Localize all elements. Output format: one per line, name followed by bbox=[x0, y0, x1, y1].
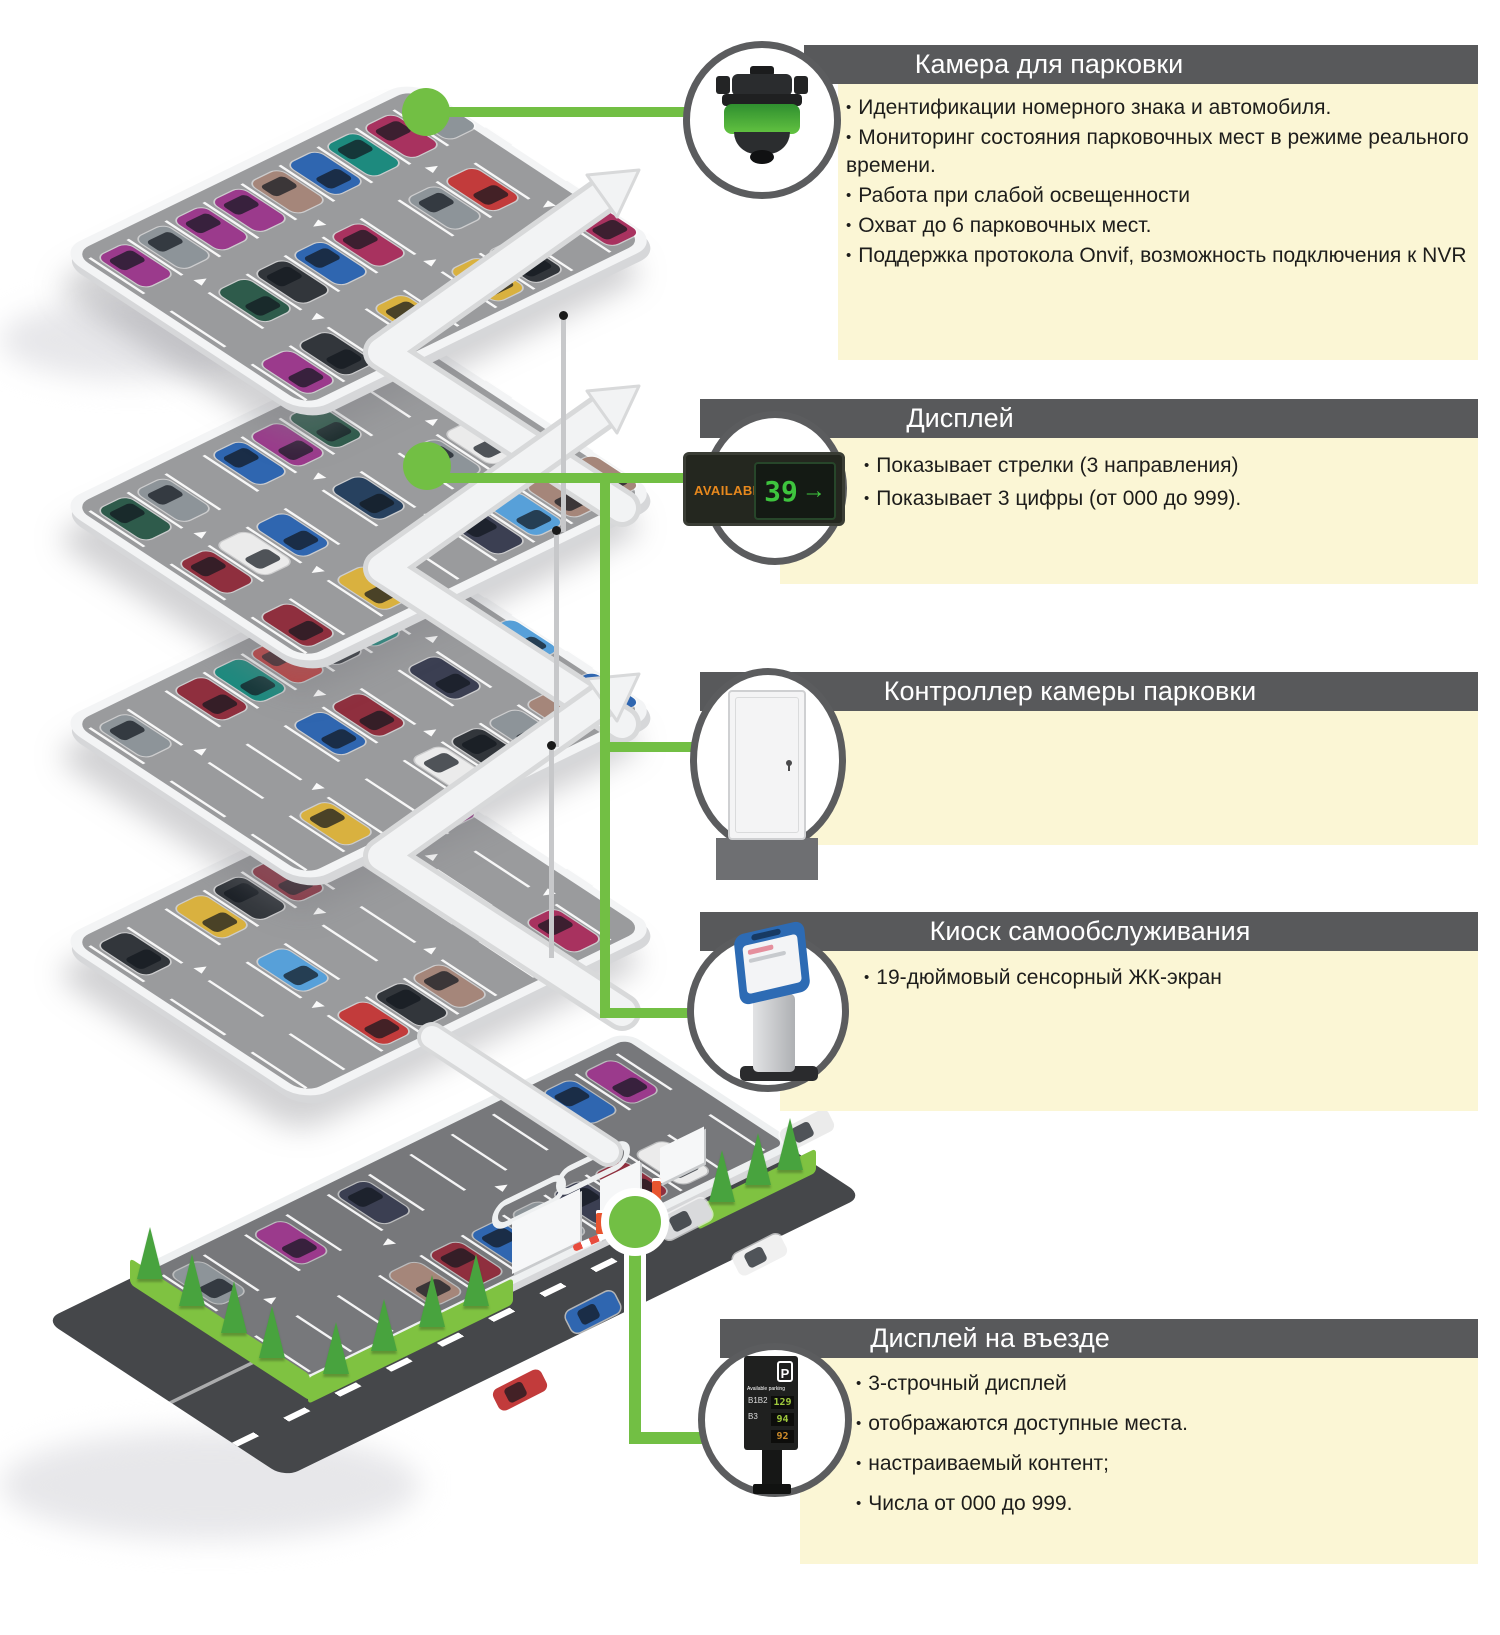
entrance-display-title: Дисплей на въезде bbox=[780, 1319, 1200, 1358]
kiosk-pedestal bbox=[753, 994, 795, 1072]
led-display-icon: AVAILABLE 39 → bbox=[683, 452, 845, 526]
parked-car bbox=[406, 655, 484, 701]
entrance-sign-pole bbox=[762, 1450, 782, 1486]
parked-car bbox=[335, 1180, 413, 1226]
parked-car bbox=[254, 947, 332, 993]
bullet-item: •Показывает 3 цифры (от 000 до 999). bbox=[864, 485, 1464, 513]
entrance-sign-zone: B3 bbox=[748, 1412, 758, 1421]
bullet-item: •Работа при слабой освещенности bbox=[846, 182, 1470, 210]
tree bbox=[419, 1275, 445, 1327]
parked-car bbox=[406, 873, 484, 919]
kiosk-title: Киоск самообслуживания bbox=[850, 912, 1330, 951]
controller-base bbox=[716, 838, 818, 880]
bullet-item: •Охват до 6 парковочных мест. bbox=[846, 212, 1470, 240]
tree bbox=[745, 1133, 771, 1185]
controller-panel bbox=[780, 711, 1478, 845]
bullet-item: •Поддержка протокола Onvif, возможность … bbox=[846, 242, 1470, 270]
entrance-sign-base bbox=[753, 1484, 791, 1494]
entrance-display-title-bar: Дисплей на въезде bbox=[720, 1319, 1478, 1358]
camera-title: Камера для парковки bbox=[824, 45, 1274, 84]
bullet-item: •19-дюймовый сенсорный ЖК-экран bbox=[864, 964, 1464, 992]
parked-car bbox=[97, 931, 175, 977]
camera-title-bar: Камера для парковки bbox=[804, 45, 1478, 84]
light-pole bbox=[561, 318, 566, 532]
connector-line-camera bbox=[426, 107, 690, 117]
parked-car bbox=[252, 1220, 330, 1266]
parked-car bbox=[97, 713, 175, 759]
display-location-dot bbox=[403, 442, 451, 490]
entrance-display-icon: P Available parking B1B2 B3 129 94 92 bbox=[744, 1356, 798, 1450]
light-pole bbox=[554, 533, 559, 747]
gate-post bbox=[596, 1210, 605, 1234]
gate-post bbox=[652, 1178, 661, 1202]
controller-cabinet-icon bbox=[728, 690, 806, 840]
parked-car bbox=[335, 565, 413, 611]
connector-line-controller bbox=[600, 742, 694, 752]
bullet-item: •Мониторинг состояния парковочных мест в… bbox=[846, 124, 1470, 180]
bullet-item: •Показывает стрелки (3 направления) bbox=[864, 452, 1464, 480]
tree bbox=[137, 1227, 163, 1279]
tree bbox=[259, 1306, 285, 1358]
parking-system-infographic: Камера для парковки •Идентификации номер… bbox=[0, 0, 1500, 1635]
shadow-blob bbox=[0, 1430, 420, 1540]
connector-line-entrance bbox=[629, 1432, 707, 1444]
parked-car bbox=[297, 801, 375, 847]
parked-car bbox=[482, 618, 560, 664]
tree bbox=[179, 1254, 205, 1306]
display-sign-value: 39 bbox=[764, 475, 798, 508]
road-car bbox=[490, 1367, 549, 1413]
connector-stem-gate bbox=[629, 1246, 641, 1442]
parking-p-logo: P bbox=[777, 1361, 793, 1382]
kiosk-bullets: •19-дюймовый сенсорный ЖК-экран bbox=[864, 964, 1464, 994]
kiosk-title-bar: Киоск самообслуживания bbox=[700, 912, 1478, 951]
entrance-sign-brand: Available parking bbox=[747, 1386, 795, 1392]
bullet-item: •Идентификации номерного знака и автомоб… bbox=[846, 94, 1470, 122]
bullet-item: •отображаются доступные места. bbox=[856, 1410, 1456, 1438]
gate-location-dot bbox=[609, 1196, 661, 1248]
parked-car bbox=[259, 602, 337, 648]
parked-car bbox=[563, 201, 641, 247]
entrance-display-bullets: •3-строчный дисплей•отображаются доступн… bbox=[856, 1370, 1456, 1530]
tree bbox=[221, 1281, 247, 1333]
entrance-sign-count: 129 bbox=[771, 1396, 794, 1409]
entrance-sign-count: 92 bbox=[771, 1430, 794, 1443]
light-pole bbox=[549, 748, 554, 958]
entrance-sign-count: 94 bbox=[771, 1413, 794, 1426]
tree bbox=[463, 1254, 489, 1306]
camera-location-dot bbox=[402, 88, 450, 136]
camera-bullets: •Идентификации номерного знака и автомоб… bbox=[846, 94, 1470, 272]
tree bbox=[777, 1118, 803, 1170]
parked-car bbox=[330, 475, 408, 521]
tree bbox=[709, 1150, 735, 1202]
bullet-item: •настраиваемый контент; bbox=[856, 1450, 1456, 1478]
parked-car bbox=[373, 294, 451, 340]
tree bbox=[323, 1322, 349, 1374]
controller-title: Контроллер камеры парковки bbox=[820, 672, 1320, 711]
connector-line-kiosk bbox=[600, 1008, 692, 1018]
parking-camera-icon bbox=[714, 66, 810, 170]
bullet-item: •3-строчный дисплей bbox=[856, 1370, 1456, 1398]
connector-line-display bbox=[427, 473, 697, 483]
tree bbox=[371, 1299, 397, 1351]
display-sign-panel: 39 → bbox=[754, 462, 836, 520]
display-sign-arrow: → bbox=[802, 477, 826, 505]
entrance-sign-zone: B1B2 bbox=[748, 1396, 768, 1405]
bullet-item: •Числа от 000 до 999. bbox=[856, 1490, 1456, 1518]
display-bullets: •Показывает стрелки (3 направления)•Пока… bbox=[864, 452, 1464, 518]
